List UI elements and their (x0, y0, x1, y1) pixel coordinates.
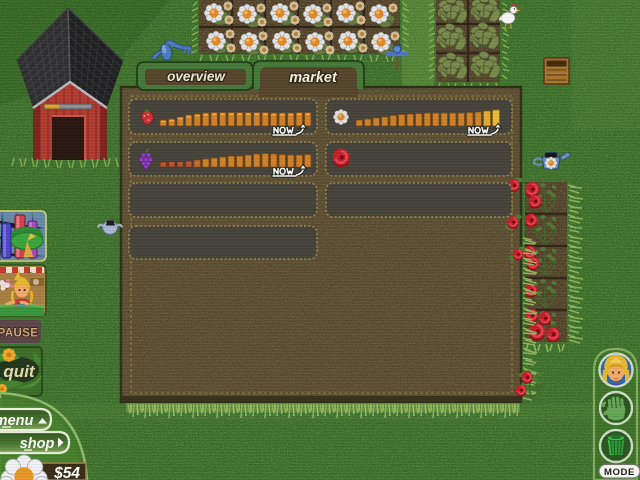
svg-text:overview: overview (167, 69, 226, 84)
svg-text:MODE: MODE (604, 467, 635, 478)
svg-text:market: market (289, 70, 338, 86)
svg-text:PAUSE: PAUSE (0, 328, 38, 340)
svg-text:$54: $54 (53, 465, 80, 480)
svg-text:quit: quit (3, 362, 35, 381)
